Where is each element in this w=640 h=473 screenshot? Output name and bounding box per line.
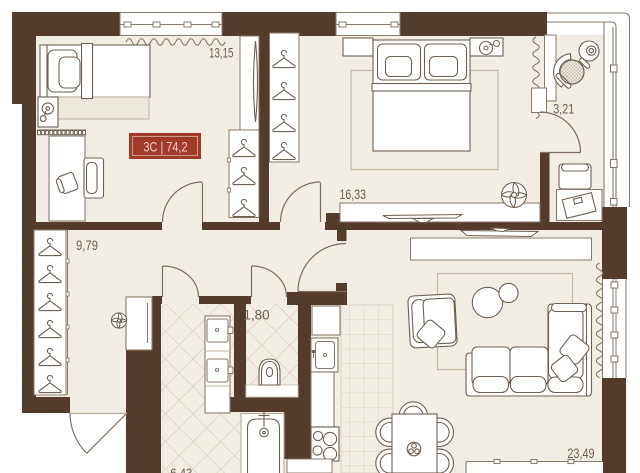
svg-text:3,21: 3,21 (553, 101, 574, 117)
svg-text:23,49: 23,49 (567, 445, 594, 461)
svg-text:16,33: 16,33 (340, 186, 367, 202)
svg-text:9,79: 9,79 (76, 237, 98, 253)
svg-text:13,15: 13,15 (209, 45, 234, 61)
svg-text:6,43: 6,43 (170, 465, 192, 473)
svg-text:3С | 74,2: 3С | 74,2 (144, 139, 188, 155)
svg-text:1,80: 1,80 (244, 306, 270, 322)
